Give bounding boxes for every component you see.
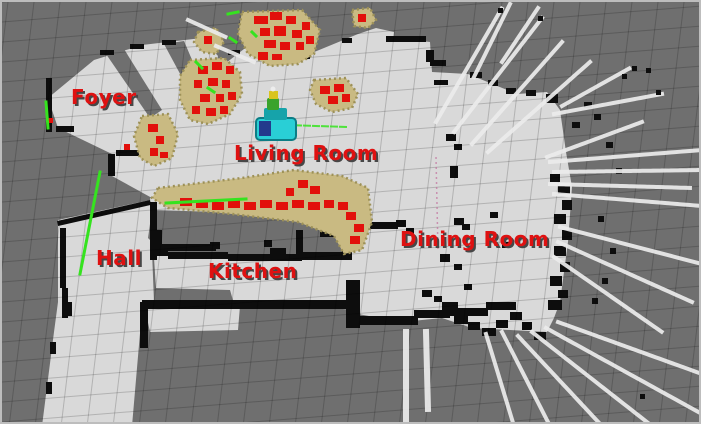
obstacle-cell (358, 14, 366, 22)
ray-endpoint (632, 66, 637, 71)
wall-cell (50, 342, 56, 354)
obstacle-cell (320, 86, 330, 94)
lidar-ray (554, 170, 701, 172)
obstacle-cell (212, 62, 222, 70)
obstacle-cell (226, 66, 234, 74)
wall-cell (446, 134, 456, 141)
obstacle-cell (258, 52, 268, 60)
wall-cell (606, 142, 613, 148)
wall-cell (598, 216, 604, 222)
wall-cell (490, 212, 498, 218)
wall-cell (454, 218, 464, 225)
obstacle-cell (292, 200, 304, 208)
obstacle-cell (286, 16, 296, 24)
wall-cell (168, 252, 228, 259)
laser-scan-line (228, 12, 238, 14)
obstacle-cell (264, 40, 276, 48)
wall-cell (358, 316, 418, 325)
wall-cell (162, 40, 176, 45)
wall-cell (562, 200, 572, 210)
obstacle-cell (276, 202, 288, 210)
laser-scan-line (46, 102, 48, 128)
obstacle-cell (296, 42, 304, 50)
ray-endpoint (646, 68, 651, 73)
obstacle-cell (254, 16, 268, 24)
obstacle-cell (346, 212, 356, 220)
wall-cell (572, 122, 580, 128)
ray-endpoint (640, 394, 645, 399)
obstacle-cell (286, 188, 294, 196)
obstacle-cell (160, 152, 168, 158)
ray-endpoint (498, 8, 503, 13)
obstacle-cell (306, 36, 314, 44)
wall-cell (522, 322, 532, 330)
obstacle-cell (292, 30, 302, 38)
wall-cell (422, 290, 432, 297)
obstacle-cell (150, 148, 158, 156)
obstacle-cell (244, 202, 256, 210)
wall-cell (468, 322, 480, 330)
robot-flag (269, 91, 278, 99)
robot-antenna-tip (271, 87, 276, 92)
ray-endpoint (538, 16, 543, 21)
obstacle-cell (298, 180, 308, 188)
map-canvas (2, 2, 701, 424)
wall-cell (346, 280, 360, 328)
wall-cell (548, 300, 562, 310)
obstacle-cell (270, 12, 282, 20)
robot-body-box (259, 121, 271, 136)
obstacle-cell (260, 200, 272, 208)
obstacle-cell (148, 124, 158, 132)
obstacle-cell (124, 144, 130, 150)
obstacle-cell (222, 80, 230, 88)
obstacle-cell (156, 136, 164, 144)
obstacle-cell (260, 28, 270, 36)
wall-cell (342, 38, 352, 43)
wall-cell (554, 246, 566, 256)
wall-cell (370, 222, 398, 229)
obstacle-cell (302, 22, 310, 30)
wall-cell (46, 382, 52, 394)
obstacle-cell (350, 236, 360, 244)
wall-cell (430, 60, 446, 66)
obstacle-cell (216, 94, 224, 102)
obstacle-cell (274, 26, 286, 36)
ray-endpoint (622, 74, 627, 79)
wall-cell (602, 278, 608, 284)
wall-cell (502, 242, 510, 248)
wall-cell (450, 166, 458, 178)
obstacle-cell (338, 202, 348, 210)
wall-cell (454, 314, 468, 324)
obstacle-cell (334, 84, 344, 92)
obstacle-cell (324, 200, 334, 208)
obstacle-cell (200, 94, 210, 102)
wall-cell (592, 298, 598, 304)
obstacle-cell (328, 96, 338, 104)
obstacle-cell (208, 78, 218, 86)
rviz-3d-map-viewport[interactable]: Foyer Living Room Hall Kitchen Dining Ro… (0, 0, 701, 424)
robot-mast (267, 98, 279, 110)
obstacle-cell (310, 186, 320, 194)
obstacle-cell (228, 92, 236, 100)
obstacle-cell (308, 202, 320, 210)
ray-endpoint (656, 90, 661, 95)
wall-cell (270, 248, 286, 255)
wall-cell (64, 302, 72, 316)
obstacle-cell (272, 54, 282, 60)
wall-cell (554, 214, 566, 224)
obstacle-cell (194, 80, 202, 88)
wall-cell (526, 90, 536, 96)
obstacle-cell (204, 36, 212, 44)
obstacle-cell (206, 108, 216, 116)
wall-cell (230, 300, 350, 309)
obstacle-cell (220, 106, 228, 114)
obstacle-cell (354, 224, 364, 232)
obstacle-cell (342, 94, 350, 102)
lidar-ray-vertical (426, 332, 428, 410)
obstacle-cell (192, 106, 200, 114)
obstacle-cell (212, 202, 224, 210)
obstacle-cell (280, 42, 290, 50)
